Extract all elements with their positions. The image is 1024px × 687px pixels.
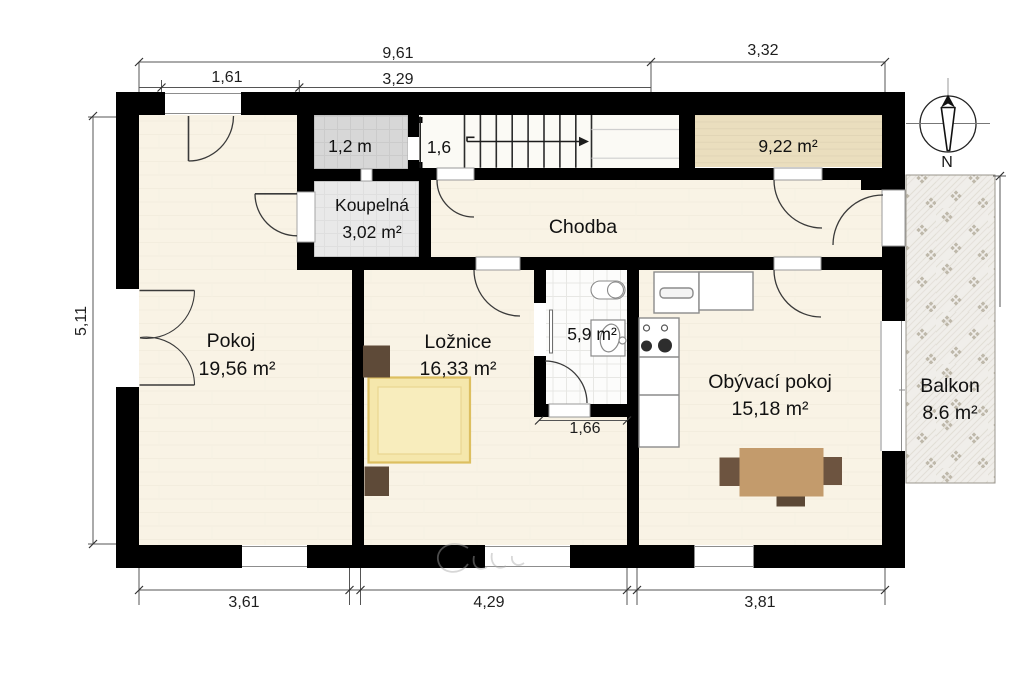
svg-text:1,6: 1,6 xyxy=(427,137,451,157)
svg-text:1,66: 1,66 xyxy=(569,420,600,437)
svg-text:15,18 m²: 15,18 m² xyxy=(732,398,809,420)
svg-text:Pokoj: Pokoj xyxy=(207,330,256,352)
svg-text:19,56 m²: 19,56 m² xyxy=(199,358,276,380)
svg-text:1,2 m: 1,2 m xyxy=(328,136,372,156)
svg-text:9,61: 9,61 xyxy=(382,45,413,62)
svg-text:3,02 m²: 3,02 m² xyxy=(342,222,401,242)
svg-text:Koupelná: Koupelná xyxy=(335,195,409,215)
svg-text:1,61: 1,61 xyxy=(211,69,242,86)
svg-text:3,32: 3,32 xyxy=(747,42,778,59)
svg-text:5,9 m²: 5,9 m² xyxy=(567,324,617,344)
svg-text:3,61: 3,61 xyxy=(228,594,259,611)
svg-text:9,22 m²: 9,22 m² xyxy=(758,136,817,156)
svg-text:Obývací pokoj: Obývací pokoj xyxy=(708,371,832,393)
svg-text:4,29: 4,29 xyxy=(473,594,504,611)
svg-text:Chodba: Chodba xyxy=(549,216,617,238)
svg-text:Ložnice: Ložnice xyxy=(424,331,491,353)
svg-text:5,11: 5,11 xyxy=(73,306,90,336)
svg-text:3,81: 3,81 xyxy=(744,594,775,611)
svg-text:N: N xyxy=(941,154,953,171)
svg-text:Balkon: Balkon xyxy=(920,375,980,397)
svg-text:8.6 m²: 8.6 m² xyxy=(922,402,978,424)
svg-text:16,33 m²: 16,33 m² xyxy=(420,358,497,380)
svg-text:3,29: 3,29 xyxy=(382,71,413,88)
